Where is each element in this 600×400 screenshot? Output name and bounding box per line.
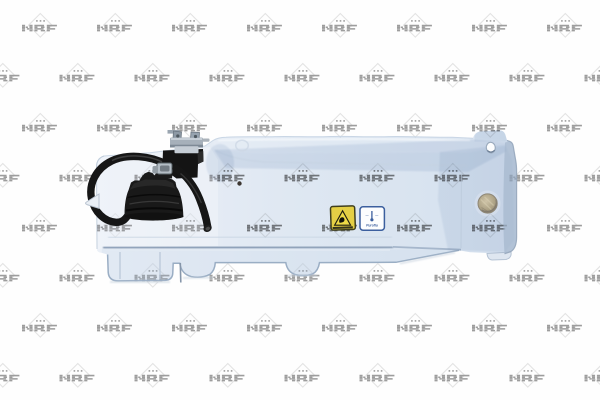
svg-text:Puroflu: Puroflu [366, 223, 379, 227]
